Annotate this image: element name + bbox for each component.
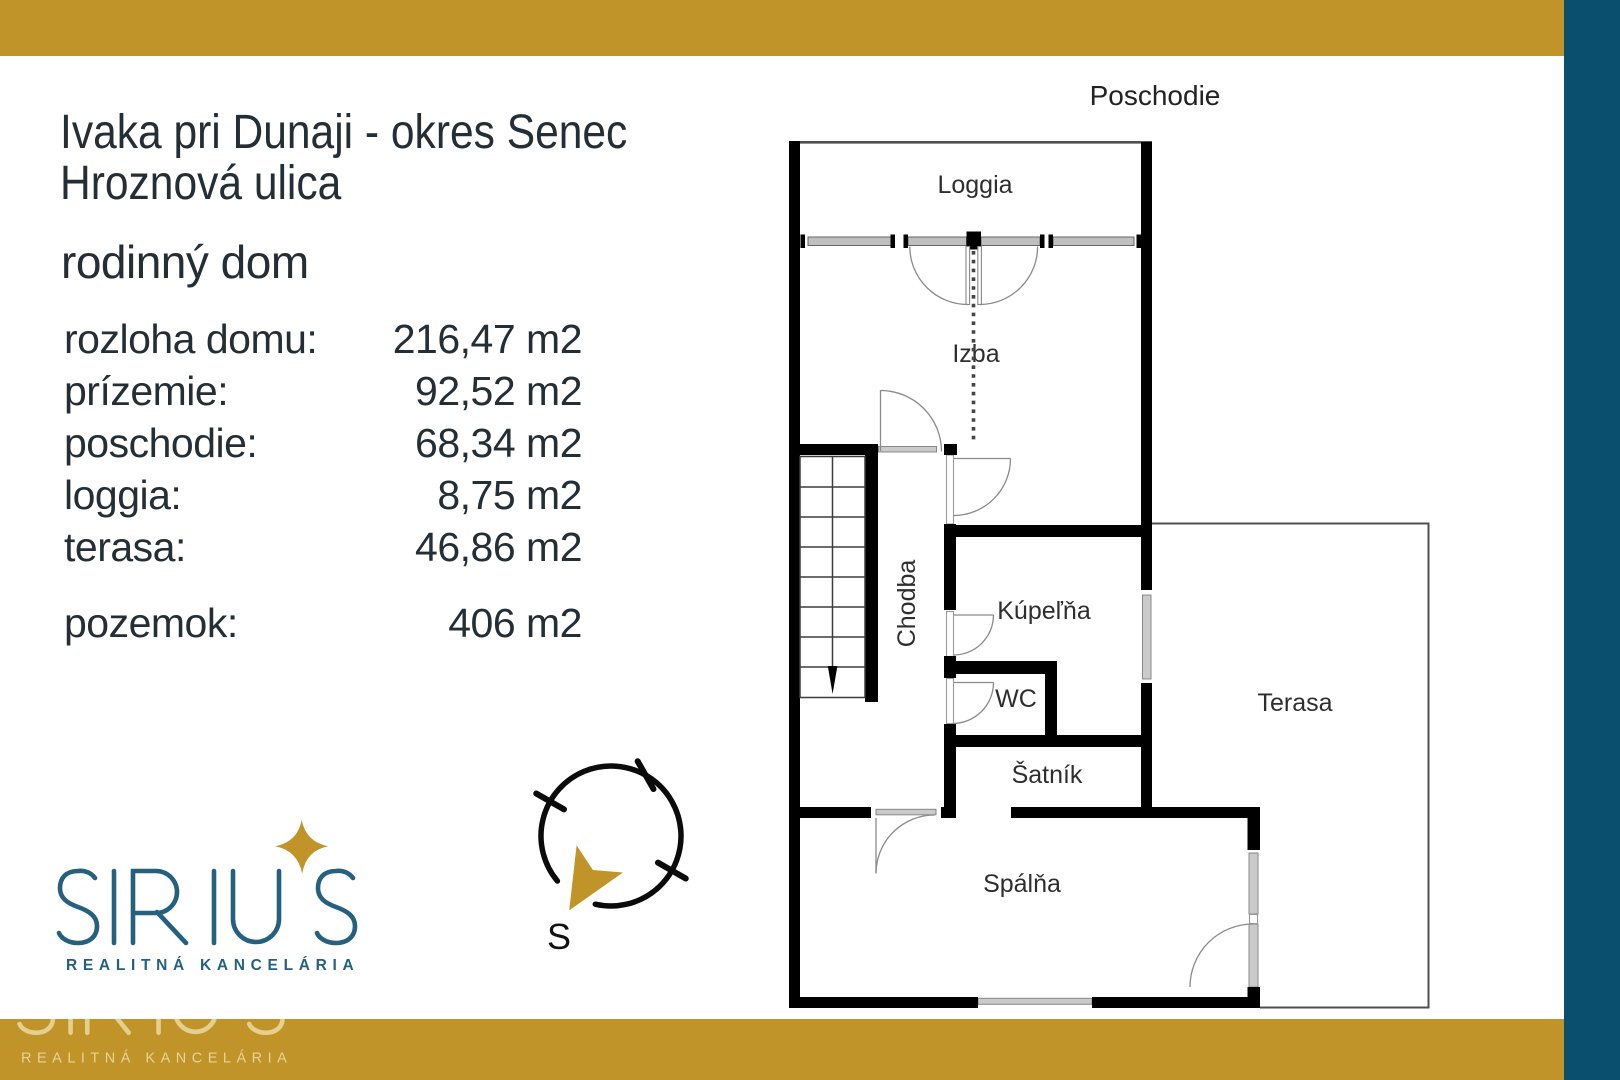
svg-text:S: S xyxy=(547,916,571,957)
svg-text:REALITNÁ KANCELÁRIA: REALITNÁ KANCELÁRIA xyxy=(21,1050,292,1067)
svg-text:REALITNÁ KANCELÁRIA: REALITNÁ KANCELÁRIA xyxy=(66,957,359,974)
